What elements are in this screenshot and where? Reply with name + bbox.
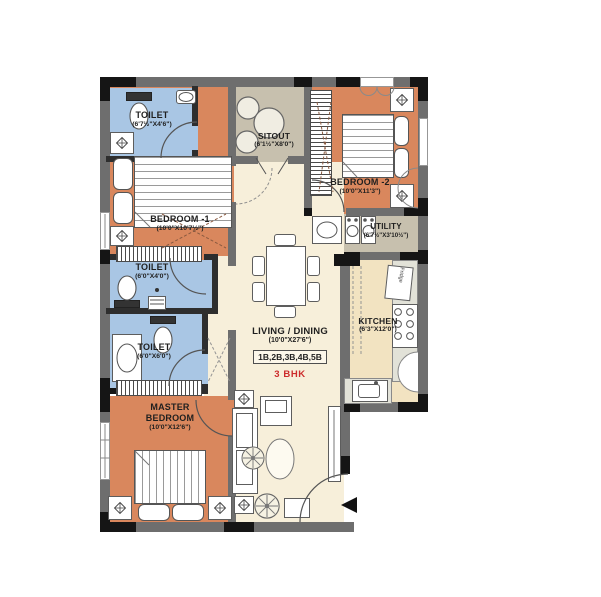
unit-type-label: 3 BHK (236, 369, 344, 380)
column-top-left-v (100, 77, 110, 101)
room-name: BEDROOM -1 (128, 214, 232, 225)
side-table (234, 390, 254, 408)
pillow (113, 158, 133, 190)
window-master (100, 422, 110, 480)
column-left-b (100, 378, 110, 412)
kitchen-sink-bowl (358, 384, 380, 398)
column-utility-r (400, 252, 419, 260)
column-step-b (398, 402, 428, 412)
column-right-b (418, 198, 428, 216)
side-table (390, 88, 414, 112)
room-name: LIVING / DINING (236, 326, 344, 337)
dining-chair (307, 256, 320, 276)
wall-spine-a (228, 77, 236, 166)
column-top-mid (294, 77, 312, 87)
window-top (360, 77, 394, 87)
wall-toilet3-right-a (202, 308, 208, 354)
pillow (394, 148, 409, 178)
pillow (394, 116, 409, 146)
dining-chair (252, 256, 265, 276)
column-utility-l (344, 252, 360, 260)
label-bedroom1: BEDROOM -1 (10'0"X10'7½") (128, 214, 232, 233)
unit-variants-badge: 1B,2B,3B,4B,5B (253, 350, 327, 364)
wc-tank (114, 300, 140, 308)
room-dims: (6'7½"X3'10½") (352, 232, 420, 239)
wardrobe-bedroom1 (116, 246, 202, 262)
label-sitout: SITOUT (6'1½"X8'0") (240, 131, 308, 149)
wall-sitout-bottom-l (228, 156, 258, 164)
column-bottom-left (100, 522, 136, 532)
sofa-cushion (236, 450, 253, 485)
label-kitchen: KITCHEN (6'3"X12'0") (340, 316, 416, 334)
label-toilet3: TOILET (6'0"X6'0") (116, 342, 192, 361)
label-toilet2: TOILET (6'0"X4'0") (110, 262, 194, 281)
room-dims: (6'0"X4'0") (110, 273, 194, 281)
dining-chair (307, 282, 320, 302)
label-master: MASTER BEDROOM (10'0"X12'6") (122, 402, 218, 432)
room-name: UTILITY (352, 222, 420, 232)
room-dims: (6'0"X6'0") (116, 353, 192, 361)
fridge: Fridge (384, 265, 413, 302)
column-top-b2l (336, 77, 360, 87)
washbasin-box (176, 90, 196, 104)
side-table (208, 496, 232, 520)
label-toilet1: TOILET (6'7½"X4'6") (108, 110, 196, 129)
room-name: MASTER BEDROOM (139, 402, 201, 424)
floor-plan: Fridge (0, 0, 601, 597)
dining-chair (274, 306, 296, 318)
room-dims: (10'0"X27'6") (236, 337, 344, 345)
shower-tray (148, 296, 166, 310)
label-utility: UTILITY (6'7½"X3'10½") (352, 222, 420, 239)
wall-bedroom2-bottom-l (304, 208, 312, 216)
room-name: TOILET (110, 262, 194, 273)
room-name: SITOUT (240, 131, 308, 141)
room-name: KITCHEN (340, 316, 416, 326)
room-name: TOILET (116, 342, 192, 353)
room-dims: (10'0"X12'6") (122, 424, 218, 432)
fridge-label: Fridge (387, 266, 414, 284)
column-right-c (418, 250, 428, 264)
dining-chair (252, 282, 265, 302)
pillow (172, 504, 204, 521)
room-dims: (10'0"X10'7½") (128, 225, 232, 233)
side-table (110, 132, 134, 154)
pillow (138, 504, 170, 521)
sitout-floor (234, 86, 308, 162)
window-bedroom2 (419, 118, 428, 166)
sofa-cushion (236, 413, 253, 448)
armchair-cushion (265, 400, 287, 413)
room-name: TOILET (108, 110, 196, 121)
column-bedroom2-bottom (404, 208, 419, 216)
room-dims: (10'0"X11'3") (304, 188, 416, 196)
wc-tank (126, 92, 152, 101)
dining-chair (274, 234, 296, 246)
wall-toilet2-right (212, 254, 218, 314)
washbasin-box (312, 216, 342, 244)
dining-table (266, 246, 306, 306)
label-bedroom2: BEDROOM -2 (10'0"X11'3") (304, 177, 416, 196)
window-bedroom1 (100, 212, 110, 250)
room-dims: (6'3"X12'0") (340, 326, 416, 334)
wall-toilet3-right-b (202, 384, 208, 394)
bed-master (134, 450, 206, 504)
bench (284, 498, 310, 518)
column-entry (340, 456, 350, 474)
column-bottom-mid (224, 522, 254, 532)
label-living: LIVING / DINING (10'0"X27'6") 1B,2B,3B,4… (236, 326, 344, 380)
room-dims: (6'7½"X4'6") (108, 121, 196, 129)
wardrobe-master (116, 380, 202, 396)
wc-tank (150, 316, 176, 324)
side-table (108, 496, 132, 520)
column-right-a (418, 77, 428, 101)
tv-unit (328, 406, 341, 482)
room-name: BEDROOM -2 (304, 177, 416, 188)
wall-sitout-bottom-r (288, 156, 308, 164)
side-table (234, 496, 254, 514)
room-dims: (6'1½"X8'0") (240, 141, 308, 149)
bed-bedroom2 (342, 114, 394, 178)
